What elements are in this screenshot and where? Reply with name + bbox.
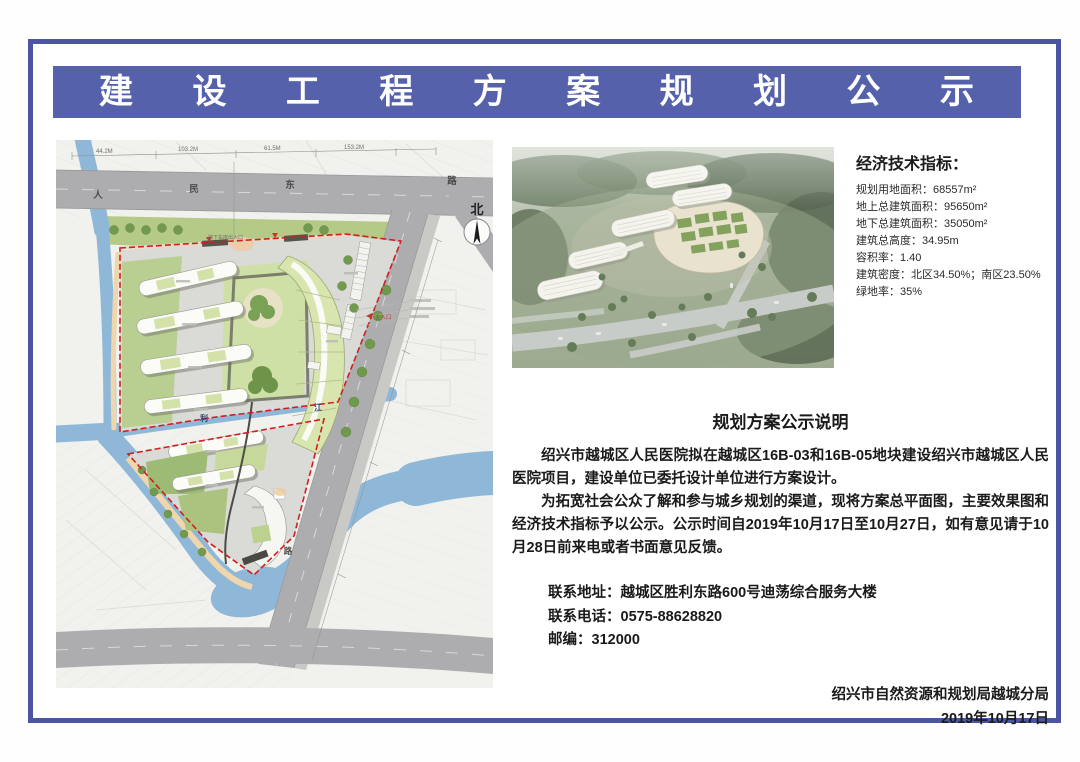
aerial-rendering xyxy=(512,147,834,368)
road-label-diag: 路 xyxy=(284,546,293,556)
notice-paragraph-2: 为拓宽社会公众了解和参与城乡规划的渠道，现将方案总平面图，主要效果图和经济技术指… xyxy=(512,491,1049,560)
indicators-panel: 经济技术指标： 规划用地面积：68557m² 地上总建筑面积：95650m² 地… xyxy=(856,150,1058,301)
contact-postcode: 邮编：312000 xyxy=(548,629,1049,653)
road-label-dong: 东 xyxy=(285,179,295,191)
site-plan-map: 主入口 地下车库出入口 44.2M 103.2M 61.5M 153.2M 人 … xyxy=(56,140,493,688)
river-label-b: 江 xyxy=(314,402,322,412)
indicator-green-ratio: 绿地率：35% xyxy=(856,284,1058,301)
contact-address: 联系地址：越城区胜利东路600号迪荡综合服务大楼 xyxy=(548,582,1049,606)
contact-block: 联系地址：越城区胜利东路600号迪荡综合服务大楼 联系电话：0575-88628… xyxy=(548,582,1049,653)
page-title: 建 设 工 程 方 案 规 划 公 示 xyxy=(53,66,1021,118)
indicator-plot-ratio: 容积率：1.40 xyxy=(856,250,1058,267)
contact-phone: 联系电话：0575-88628820 xyxy=(548,606,1049,630)
indicator-above-ground-area: 地上总建筑面积：95650m² xyxy=(856,199,1058,216)
road-label-min: 民 xyxy=(189,184,199,195)
notice-section: 规划方案公示说明 绍兴市越城区人民医院拟在越城区16B-03和16B-05地块建… xyxy=(512,408,1049,731)
map-label-garage: 地下车库出入口 xyxy=(208,234,243,241)
signature-org: 绍兴市自然资源和规划局越城分局 xyxy=(512,683,1049,707)
indicators-title: 经济技术指标： xyxy=(856,150,1058,174)
notice-poster-page: 建 设 工 程 方 案 规 划 公 示 xyxy=(0,0,1080,762)
map-label-entrance: 主入口 xyxy=(375,313,392,321)
rendering-haze-overall xyxy=(512,147,834,368)
title-banner: 建 设 工 程 方 案 规 划 公 示 xyxy=(53,66,1021,118)
dim-label-1: 44.2M xyxy=(96,149,113,155)
indicator-building-height: 建筑总高度：34.95m xyxy=(856,233,1058,250)
dim-label-4: 153.2M xyxy=(344,145,364,151)
notice-title: 规划方案公示说明 xyxy=(512,408,1049,433)
notice-paragraph-1: 绍兴市越城区人民医院拟在越城区16B-03和16B-05地块建设绍兴市越城区人民… xyxy=(512,445,1049,491)
indicator-land-area: 规划用地面积：68557m² xyxy=(856,182,1058,199)
dim-label-3: 61.5M xyxy=(264,146,281,152)
north-label: 北 xyxy=(470,202,483,217)
signature-date: 2019年10月17日 xyxy=(512,707,1049,731)
indicator-below-ground-area: 地下总建筑面积：35050m² xyxy=(856,216,1058,233)
river-label-a: 利 xyxy=(199,413,208,423)
road-label-ren: 人 xyxy=(93,189,103,201)
dim-label-2: 103.2M xyxy=(178,147,198,153)
signature-block: 绍兴市自然资源和规划局越城分局 2019年10月17日 xyxy=(512,683,1049,731)
road-label-lu: 路 xyxy=(447,175,457,187)
indicator-building-density: 建筑密度：北区34.50%；南区23.50% xyxy=(856,267,1058,284)
